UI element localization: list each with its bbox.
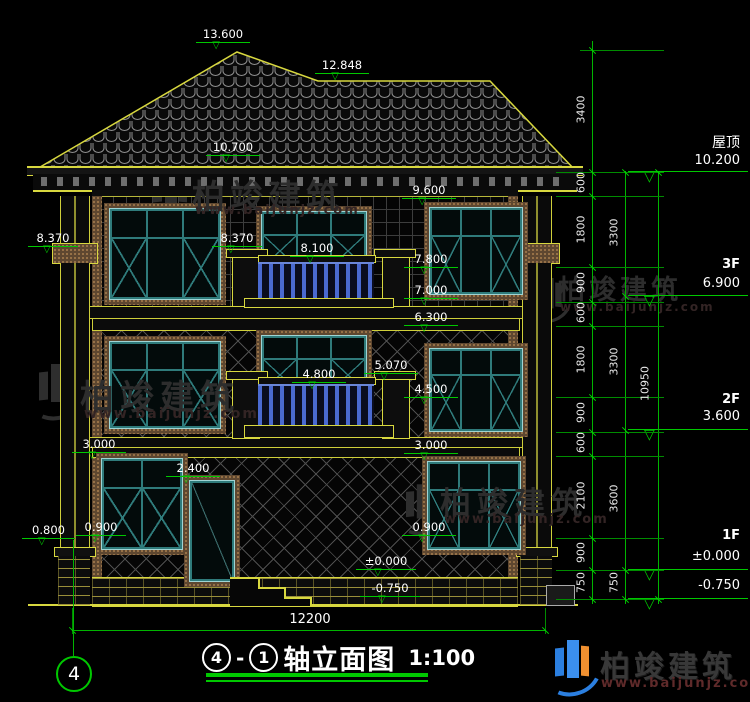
level-label-roof: 屋顶 bbox=[640, 132, 740, 152]
window-pane bbox=[264, 338, 296, 358]
axis-bubble-number: 4 bbox=[68, 663, 80, 685]
window-pane bbox=[184, 344, 218, 369]
dim-value: 750 bbox=[608, 555, 621, 611]
elevation-value: 7.800 bbox=[415, 252, 448, 266]
entrance-step-3 bbox=[284, 597, 312, 606]
dim-extension-line bbox=[556, 267, 664, 268]
elevation-marker: 9.600 bbox=[402, 183, 456, 199]
dim-value: 3600 bbox=[608, 471, 621, 527]
elevation-marker: 5.070 bbox=[364, 358, 418, 374]
elevation-marker: 2.400 bbox=[166, 461, 220, 477]
dim-extension-line bbox=[556, 432, 664, 433]
cad-elevation-drawing: 柏竣建筑 www.baijunjz.com 柏竣建筑 www.baijunjz.… bbox=[0, 0, 750, 702]
window-pane bbox=[432, 210, 460, 235]
elevation-value: 4.500 bbox=[415, 382, 448, 396]
brand-url: www.baijunjz.com bbox=[601, 676, 750, 691]
dim-value: 3300 bbox=[608, 334, 621, 390]
elevation-value: 0.800 bbox=[32, 523, 65, 537]
elevation-value: 4.800 bbox=[303, 367, 336, 381]
window-pane bbox=[112, 239, 146, 297]
elevation-marker: 0.900 bbox=[402, 520, 456, 536]
roof bbox=[27, 44, 583, 174]
elevation-marker: 13.600 bbox=[196, 27, 250, 43]
elevation-value: 2.400 bbox=[177, 461, 210, 475]
door-panel bbox=[192, 483, 232, 579]
elevation-marker: 3.000 bbox=[404, 438, 458, 454]
window-pane bbox=[148, 211, 182, 237]
elevation-marker: ±0.000 bbox=[356, 554, 416, 570]
dim-extension-line bbox=[556, 172, 664, 173]
title-axis-start: 4 bbox=[202, 643, 231, 672]
elevation-value: 8.370 bbox=[221, 231, 254, 245]
elevation-value: 12.848 bbox=[322, 58, 362, 72]
title-underline-thin bbox=[206, 680, 428, 682]
balcony-2f-balusters bbox=[258, 384, 374, 429]
window-pane bbox=[492, 351, 520, 374]
dim-value: 2100 bbox=[575, 468, 588, 524]
dim-value: 1800 bbox=[575, 202, 588, 258]
window-pane bbox=[104, 461, 141, 487]
level-elev-2f: 3.600 bbox=[640, 409, 740, 424]
elevation-value: 3.000 bbox=[83, 437, 116, 451]
elevation-marker: 4.800 bbox=[292, 367, 346, 383]
dim-chain-line bbox=[625, 171, 626, 604]
dim-extension-line bbox=[556, 326, 664, 327]
elevation-value: 10.700 bbox=[213, 140, 253, 154]
elevation-marker: 7.000 bbox=[404, 283, 458, 299]
dim-extension-line bbox=[556, 538, 664, 539]
level-elev-ground: -0.750 bbox=[640, 578, 740, 593]
elevation-value: 7.000 bbox=[415, 283, 448, 297]
window-pane bbox=[112, 344, 146, 369]
elevation-marker: 12.848 bbox=[315, 58, 369, 74]
window-pane bbox=[492, 237, 520, 292]
dim-value: 3400 bbox=[575, 82, 588, 138]
window-pane bbox=[492, 210, 520, 235]
level-label-3f: 3F bbox=[640, 257, 740, 272]
dim-extension-line bbox=[556, 302, 664, 303]
title-underline-thick bbox=[206, 673, 428, 677]
watermark-url: www.baijunjz.com bbox=[84, 406, 259, 422]
entry-door bbox=[184, 475, 240, 587]
axis-bubble: 4 bbox=[56, 656, 92, 692]
window-pane bbox=[462, 210, 490, 235]
elevation-value: 0.900 bbox=[85, 520, 118, 534]
watermark-url: www.baijunjz.com bbox=[195, 203, 360, 218]
window-pane bbox=[104, 489, 141, 547]
title-text: 轴立面图 bbox=[283, 638, 395, 677]
level-elev-1f: ±0.000 bbox=[640, 549, 740, 564]
balcony-2f-slab bbox=[244, 425, 394, 438]
balcony-3f-slab bbox=[244, 298, 394, 308]
pilaster-left-base bbox=[58, 556, 90, 605]
window-pane bbox=[332, 338, 364, 358]
window-pane bbox=[184, 239, 218, 297]
dim-extension-line bbox=[556, 456, 664, 457]
level-elev-roof: 10.200 bbox=[640, 153, 740, 168]
drawing-title: 4 - 1 轴立面图 1:100 bbox=[202, 638, 475, 677]
elevation-marker: 6.300 bbox=[404, 310, 458, 326]
elevation-marker: 8.100 bbox=[290, 241, 344, 257]
dim-value: 1800 bbox=[575, 332, 588, 388]
dim-total-height: 10950 bbox=[639, 356, 652, 412]
window-pane bbox=[148, 239, 182, 297]
elevation-marker: 0.900 bbox=[76, 520, 126, 536]
elevation-marker: 7.800 bbox=[404, 252, 458, 268]
title-scale: 1:100 bbox=[408, 646, 475, 670]
elevation-marker: 8.370 bbox=[28, 231, 78, 247]
elevation-value: 5.070 bbox=[375, 358, 408, 372]
dim-total-width: 12200 bbox=[278, 612, 342, 627]
window-pane bbox=[298, 338, 330, 358]
dim-value: 600 bbox=[575, 415, 588, 471]
level-label-1f: 1F bbox=[640, 528, 740, 543]
window-pane bbox=[492, 376, 520, 429]
elevation-marker: 4.500 bbox=[404, 382, 458, 398]
dim-chain-line bbox=[592, 41, 593, 604]
level-tri-2f bbox=[644, 429, 655, 441]
entrance-step-2 bbox=[258, 587, 286, 606]
elevation-value: ±0.000 bbox=[365, 554, 408, 568]
window-pane bbox=[462, 237, 490, 292]
dim-line-bottom bbox=[72, 630, 545, 631]
brand-logo-icon bbox=[542, 638, 598, 696]
roof-outline bbox=[35, 52, 575, 170]
elevation-value: 9.600 bbox=[413, 183, 446, 197]
elevation-value: 13.600 bbox=[203, 27, 243, 41]
axis-line bbox=[73, 540, 74, 656]
level-elev-3f: 6.900 bbox=[640, 276, 740, 291]
elevation-marker: 0.800 bbox=[22, 523, 75, 539]
window-3f-left bbox=[104, 203, 226, 305]
window-pane bbox=[432, 351, 460, 374]
window-pane bbox=[462, 376, 490, 429]
elevation-marker: 8.370 bbox=[212, 231, 262, 247]
elevation-value: -0.750 bbox=[371, 581, 408, 595]
dim-value: 750 bbox=[575, 555, 588, 611]
level-tri-3f bbox=[644, 295, 655, 307]
elevation-value: 8.370 bbox=[37, 231, 70, 245]
elevation-value: 3.000 bbox=[415, 438, 448, 452]
entrance-step-1 bbox=[230, 577, 260, 606]
elevation-marker: 10.700 bbox=[206, 140, 260, 156]
dim-chain-line bbox=[658, 171, 659, 604]
window-pane bbox=[143, 489, 180, 547]
elevation-value: 0.900 bbox=[413, 520, 446, 534]
elevation-value: 6.300 bbox=[415, 310, 448, 324]
title-dash: - bbox=[236, 646, 244, 670]
elevation-marker: -0.750 bbox=[360, 581, 420, 597]
elevation-value: 8.100 bbox=[301, 241, 334, 255]
dim-value: 3300 bbox=[608, 205, 621, 261]
level-label-2f: 2F bbox=[640, 392, 740, 407]
window-pane bbox=[462, 351, 490, 374]
window-pane bbox=[148, 344, 182, 369]
side-step-block bbox=[546, 585, 575, 606]
dim-extension-line bbox=[556, 196, 664, 197]
elevation-marker: 3.000 bbox=[72, 437, 126, 453]
window-pane bbox=[112, 211, 146, 237]
title-axis-end: 1 bbox=[249, 643, 278, 672]
